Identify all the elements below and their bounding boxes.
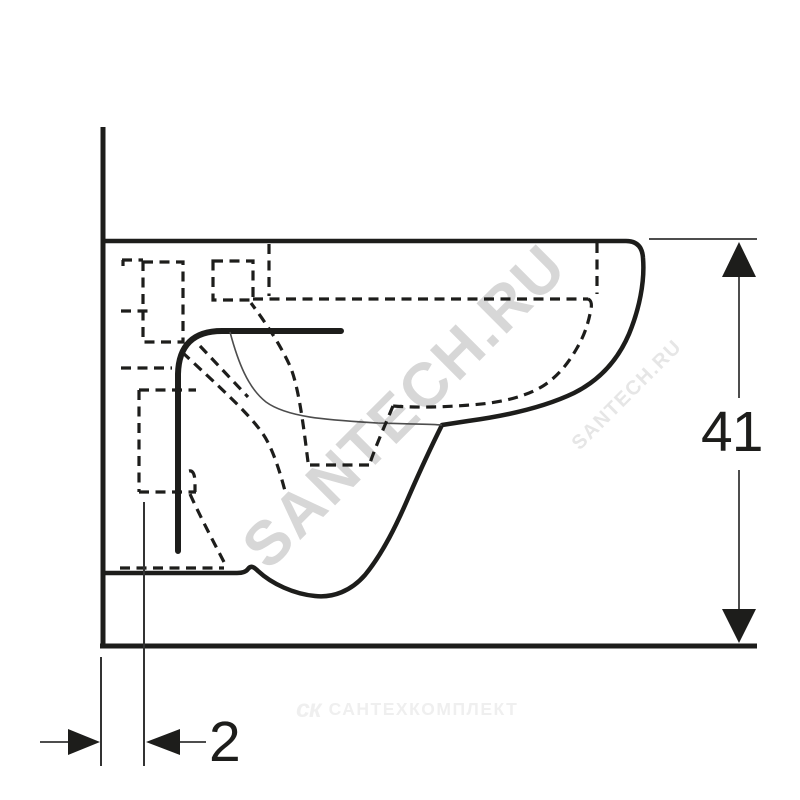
hidden-cistern-rect-upper [143,262,183,342]
dim-offset-arrow-left-icon [146,729,180,755]
hidden-trap-right-wall [370,406,393,463]
toilet-outer-profile [104,241,643,596]
dim-height-label: 41 [701,404,762,461]
inner-bowl-thin-line [230,332,442,425]
dim-offset-label: 2 [209,714,240,771]
hidden-outlet-pipe-lower [190,494,224,562]
hidden-bowl-inner-outline [393,299,591,407]
drawing-linework [0,0,800,800]
dim-height-arrow-down-icon [722,609,756,643]
hidden-flush-box [213,261,253,300]
hidden-outlet-pipe-upper [182,352,286,495]
dim-offset-arrow-right-icon [68,729,100,755]
hidden-mount-rect-lower [139,390,196,492]
toilet-technical-drawing: SANTECH.RU SANTECH.RU ск САНТЕХКОМПЛЕКТ [0,0,800,800]
dimension-offset-group [40,502,206,766]
hidden-trap-left-wall [251,303,308,462]
dim-height-arrow-up-icon [722,242,756,277]
hidden-bracket-hook [122,260,143,266]
inner-rim-shelf [178,331,341,551]
hidden-plumbing-group [120,243,597,568]
